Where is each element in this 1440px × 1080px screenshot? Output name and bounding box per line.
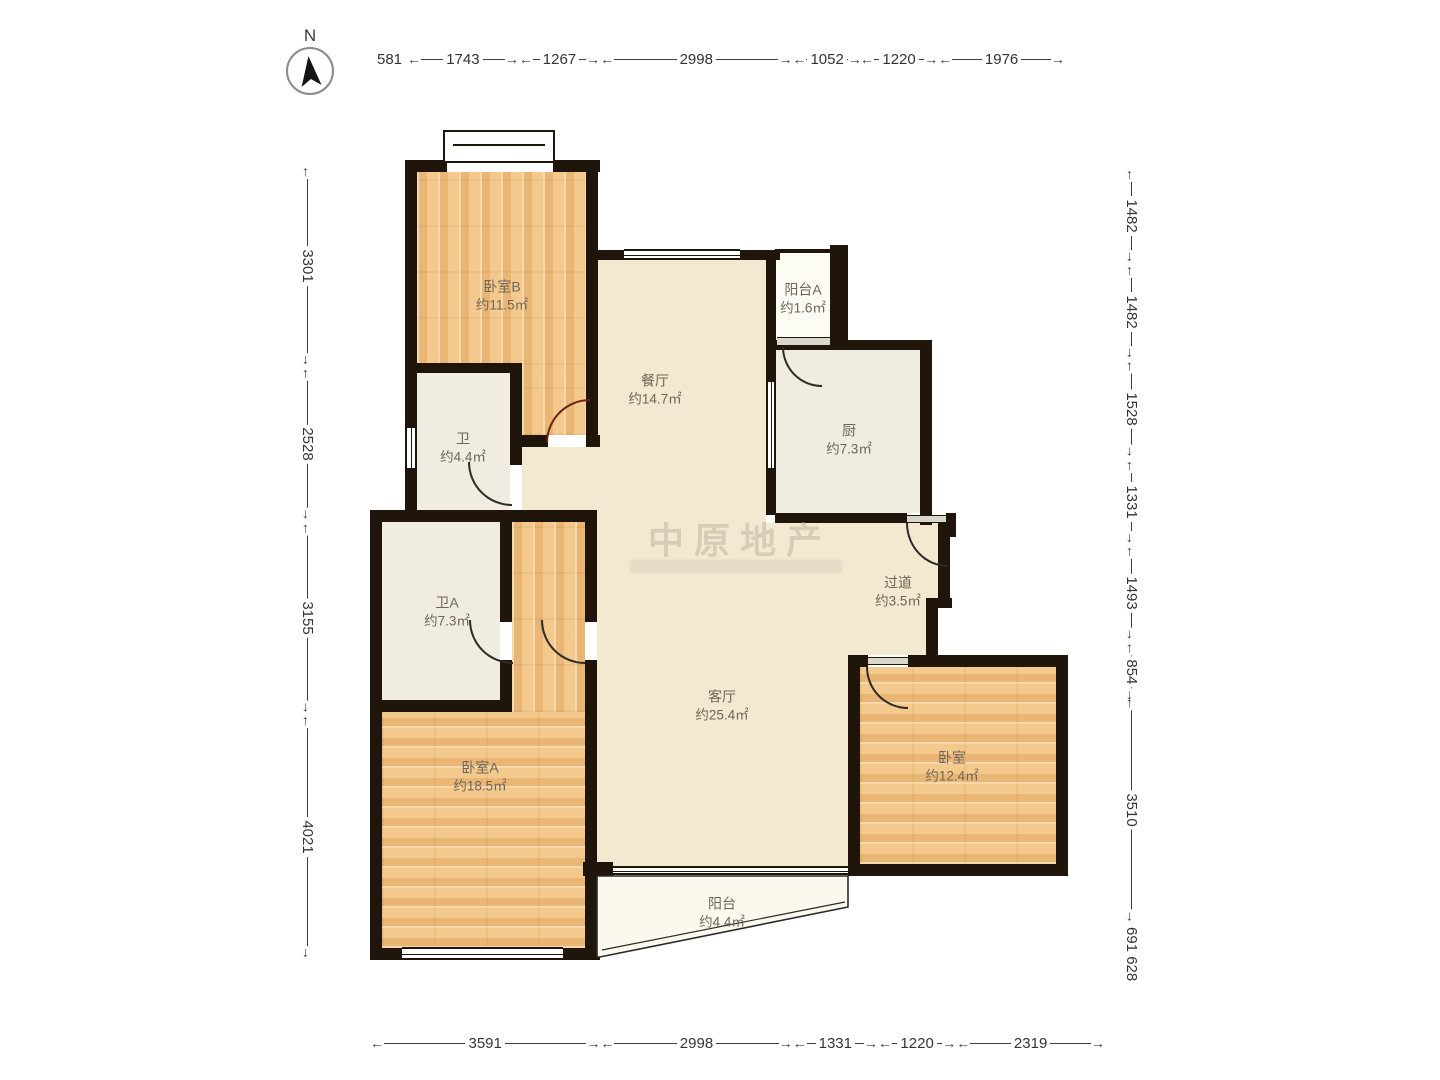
compass-north-label: N	[284, 26, 336, 46]
watermark-subline	[630, 560, 842, 573]
wall	[585, 660, 597, 712]
wall	[597, 250, 624, 260]
compass-needle-icon	[288, 49, 332, 93]
dimension-value: 2998	[677, 1035, 716, 1052]
wall	[920, 340, 932, 525]
wall	[405, 468, 417, 512]
window	[443, 130, 555, 163]
dimension-segment: ←4021→	[292, 714, 324, 960]
dimension-value: 1331	[1124, 482, 1141, 521]
dimension-segment: ←1976→	[938, 46, 1065, 72]
room-area: 约4.4㎡	[440, 448, 486, 466]
watermark: 中原地产	[648, 512, 832, 564]
wall	[766, 250, 776, 342]
wall	[370, 510, 382, 960]
dimension-segment: ←1528→	[1116, 360, 1148, 459]
dimension-segment: ←3301→	[292, 165, 324, 367]
dimension-value: 4021	[300, 817, 317, 856]
compass-ring-icon	[286, 47, 334, 95]
dimension-value: 3301	[300, 246, 317, 285]
wall	[405, 363, 522, 373]
dimension-suffix: 691 628	[1116, 924, 1148, 996]
dimension-segment: ←1220→	[878, 1030, 956, 1056]
room-name: 卫	[440, 429, 486, 448]
dimension-segment: ←3155→	[292, 521, 324, 714]
room-label-bath-a: 卫A 约7.3㎡	[424, 593, 470, 630]
dimension-value: 1482	[1124, 292, 1141, 331]
room-name: 阳台A	[780, 280, 826, 299]
dimension-segment: ←1743→	[407, 46, 519, 72]
wall	[848, 655, 868, 667]
dimension-segment: ←1267→	[519, 46, 600, 72]
wall	[1056, 655, 1068, 876]
room-name: 客厅	[695, 687, 748, 706]
room-name: 餐厅	[628, 371, 681, 390]
dimension-value: 3591	[465, 1035, 504, 1052]
room-area: 约14.7㎡	[628, 390, 681, 408]
ruler-right: ←1482→←1482→←1528→←1331→←1493→←854→←3510…	[1116, 168, 1148, 996]
room-label-hallway: 过道 约3.5㎡	[875, 573, 921, 610]
dimension-segment: ←3510→	[1116, 697, 1148, 924]
room-name: 过道	[875, 573, 921, 592]
wall	[500, 660, 512, 712]
room-name: 卫A	[424, 593, 470, 612]
room-area: 约1.6㎡	[780, 299, 826, 317]
room-label-bedroom: 卧室 约12.4㎡	[925, 748, 978, 785]
dimension-segment: ←1482→	[1116, 264, 1148, 360]
wall	[370, 700, 512, 712]
ruler-bottom: ←3591→←2998→←1331→←1220→←2319→	[370, 1030, 1105, 1056]
dimension-value: 3510	[1124, 791, 1141, 830]
room-name: 厨	[826, 421, 872, 440]
room-label-bedroom-a: 卧室A 约18.5㎡	[453, 758, 506, 795]
compass: N	[284, 26, 336, 95]
dimension-value: 1220	[897, 1035, 936, 1052]
wall	[500, 522, 512, 622]
dimension-value: 3155	[300, 598, 317, 637]
dimension-value: 1528	[1124, 390, 1141, 429]
dimension-value: 1482	[1124, 196, 1141, 235]
room-area: 约7.3㎡	[424, 612, 470, 630]
dimension-segment: ←2319→	[956, 1030, 1105, 1056]
wall	[522, 435, 548, 447]
dimension-segment: ←1331→	[1116, 459, 1148, 545]
window	[766, 382, 776, 468]
window	[405, 428, 417, 468]
dimension-segment: ←854→	[1116, 642, 1148, 697]
dimension-value: 1267	[540, 51, 579, 68]
wall	[585, 522, 597, 622]
room-name: 阳台	[699, 894, 745, 913]
room-label-bedroom-b: 卧室B 约11.5㎡	[476, 277, 528, 314]
dimension-value: 2998	[677, 51, 716, 68]
dimension-value: 1743	[443, 51, 482, 68]
room-bedroom-b-floor	[417, 172, 588, 365]
dimension-segment: ←2528→	[292, 367, 324, 522]
room-label-bath: 卫 约4.4㎡	[440, 429, 486, 466]
dimension-value: 2319	[1011, 1035, 1050, 1052]
wall	[405, 160, 417, 373]
room-name: 卧室A	[453, 758, 506, 777]
dimension-value: 1331	[816, 1035, 855, 1052]
wall	[848, 667, 860, 864]
floor-plan-canvas: N 中原地产	[0, 0, 1440, 1080]
wall	[510, 373, 522, 465]
door-threshold	[907, 515, 946, 523]
room-label-balcony: 阳台 约4.4㎡	[699, 894, 745, 931]
dimension-prefix-top: 581	[377, 51, 402, 68]
dimension-value: 1052	[807, 51, 846, 68]
dimension-value: 2528	[300, 424, 317, 463]
room-area: 约12.4㎡	[925, 767, 978, 785]
room-area: 约7.3㎡	[826, 440, 872, 458]
dimension-segment: ←1482→	[1116, 168, 1148, 264]
wall	[848, 864, 1068, 876]
room-bedroom-a-floor	[382, 712, 585, 948]
ruler-top: ←1743→←1267→←2998→←1052→←1220→←1976→	[407, 46, 1065, 72]
room-name: 卧室	[925, 748, 978, 767]
dimension-segment: ←2998→	[600, 46, 792, 72]
room-label-dining: 餐厅 约14.7㎡	[628, 371, 681, 408]
room-label-kitchen: 厨 约7.3㎡	[826, 421, 872, 458]
room-label-balcony-a: 阳台A 约1.6㎡	[780, 280, 826, 317]
ruler-left: ←3301→←2528→←3155→←4021→	[292, 165, 324, 960]
door-threshold	[777, 337, 830, 346]
room-label-living: 客厅 约25.4㎡	[695, 687, 748, 724]
wall	[830, 245, 848, 342]
room-area: 约11.5㎡	[476, 296, 528, 314]
dimension-segment: ←1052→	[792, 46, 859, 72]
dimension-value: 691 628	[1124, 924, 1141, 984]
dimension-segment: ←2998→	[600, 1030, 792, 1056]
room-name: 卧室B	[476, 277, 528, 296]
dimension-segment: ←1331→	[793, 1030, 878, 1056]
corridor-floor	[522, 447, 597, 510]
wall	[766, 342, 776, 382]
dimension-segment: ←1220→	[860, 46, 938, 72]
room-area: 约4.4㎡	[699, 913, 745, 931]
dimension-segment: ←1493→	[1116, 545, 1148, 642]
dimension-segment: ←3591→	[370, 1030, 600, 1056]
wall	[775, 249, 834, 253]
room-area: 约25.4㎡	[695, 706, 748, 724]
wall	[926, 608, 938, 657]
wall	[766, 468, 776, 515]
wall	[405, 373, 417, 428]
room-area: 约18.5㎡	[453, 777, 506, 795]
room-area: 约3.5㎡	[875, 592, 921, 610]
dimension-value: 854	[1124, 656, 1141, 687]
dimension-value: 1493	[1124, 574, 1141, 613]
door-threshold	[868, 657, 908, 665]
window	[613, 866, 848, 875]
suite-corridor-floor	[512, 522, 585, 712]
window	[402, 947, 563, 960]
window	[624, 249, 740, 260]
dimension-value: 1976	[982, 51, 1021, 68]
dimension-value: 1220	[879, 51, 918, 68]
